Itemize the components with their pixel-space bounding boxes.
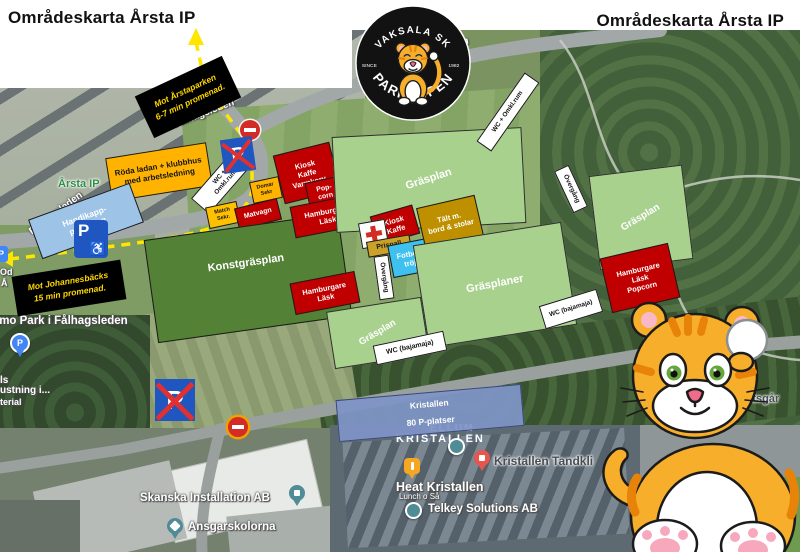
logo-year-text: 1982: [448, 63, 459, 69]
area-grasplan-top-label: Gräsplan: [404, 166, 453, 193]
parking-pin-icon: P: [10, 333, 30, 353]
area-konstgrasplan-label: Konstgräsplan: [207, 252, 285, 276]
area-map-page: Årsta IP Fålhagsleden Fålhagsleden Fålha…: [0, 0, 800, 552]
parking-letter: P: [78, 221, 89, 241]
area-grasplan-right-label: Gräsplan: [619, 201, 662, 234]
parking-letter: P: [0, 249, 4, 259]
tiger-mascot: [585, 288, 800, 552]
area-grasplaner-label: Gräsplaner: [465, 273, 525, 297]
page-title-right: Områdeskarta Årsta IP: [596, 11, 784, 31]
no-parking-sign: P: [220, 136, 256, 174]
up-arrow-icon: [188, 28, 204, 45]
parking-pin-icon: P: [0, 246, 8, 262]
no-parking-sign: P: [155, 379, 195, 421]
page-title-left: Områdeskarta Årsta IP: [8, 8, 196, 28]
wheelchair-icon: ♿: [90, 241, 106, 257]
parking-letter: P: [17, 338, 23, 348]
no-entry-sign: [228, 417, 248, 437]
handicap-parking-sign: P ♿: [74, 220, 108, 258]
club-logo: VAKSALA SK PARKCUPEN SINCE 1982: [354, 4, 472, 122]
logo-since-text: SINCE: [362, 63, 378, 69]
